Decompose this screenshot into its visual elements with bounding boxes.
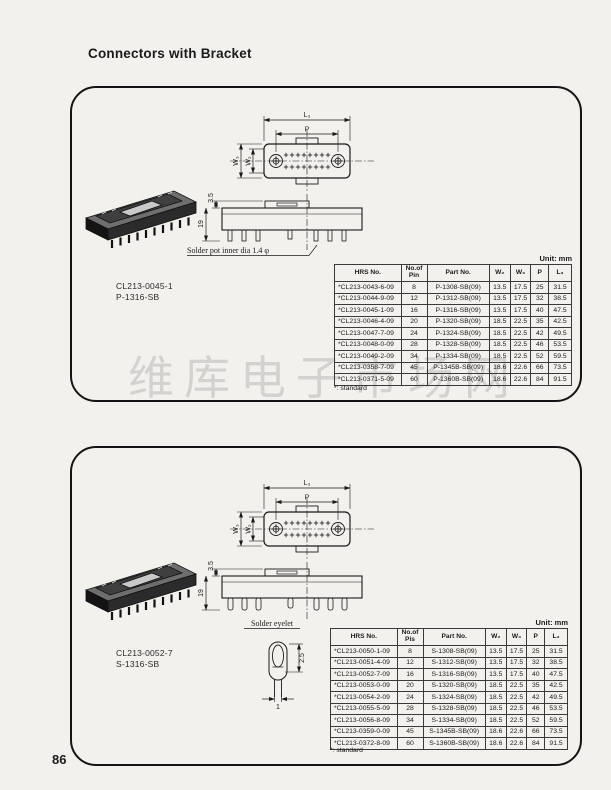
column-header: HRS No.	[335, 265, 402, 282]
table-cell: 18.5	[489, 328, 510, 340]
table-cell: 17.5	[510, 282, 531, 294]
table-cell: 13.5	[485, 669, 506, 681]
table-row: *CL213-0050-1-098S-1308-SB(09)13.517.525…	[331, 646, 568, 658]
table-cell: 42	[531, 328, 549, 340]
table-cell: P-1308-SB(09)	[427, 282, 489, 294]
table-cell: 25	[527, 646, 545, 658]
table-cell: 13.5	[485, 657, 506, 669]
table-cell: 35	[531, 316, 549, 328]
table-cell: 22.5	[506, 692, 527, 704]
table-cell: 22.5	[506, 680, 527, 692]
column-header: W₂	[485, 629, 506, 646]
column-header: W₃	[510, 265, 531, 282]
column-header: W₃	[506, 629, 527, 646]
table-cell: 53.5	[549, 339, 572, 351]
table-cell: 59.5	[549, 351, 572, 363]
table-cell: *CL213-0044-9-09	[335, 293, 402, 305]
table-cell: 53.5	[545, 703, 568, 715]
panel-solder-pot-connector: L₃ P W₃ W₂	[70, 86, 582, 402]
table-cell: 17.5	[506, 669, 527, 681]
table-cell: 32	[527, 657, 545, 669]
model-part-no: S-1316-SB	[116, 659, 173, 670]
table-cell: 40	[531, 305, 549, 317]
table-cell: 20	[397, 680, 423, 692]
table-cell: P-1312-SB(09)	[427, 293, 489, 305]
table-cell: 8	[397, 646, 423, 658]
connector-photo-iso	[86, 563, 196, 620]
table-cell: 42.5	[549, 316, 572, 328]
column-header: Part No.	[423, 629, 485, 646]
dim-label-eyelet-width: 1	[276, 704, 280, 711]
table-row: *CL213-0046-4-0920P-1320-SB(09)18.522.53…	[335, 316, 572, 328]
column-header: No.of Pin	[401, 265, 427, 282]
table-cell: *CL213-0043-6-09	[335, 282, 402, 294]
table-cell: 8	[401, 282, 427, 294]
table-cell: S-1308-SB(09)	[423, 646, 485, 658]
table-row: *CL213-0045-1-0916P-1316-SB(09)13.517.54…	[335, 305, 572, 317]
table-cell: 47.5	[549, 305, 572, 317]
table-cell: P-1316-SB(09)	[427, 305, 489, 317]
table-row: *CL213-0371-5-0960P-1360B-SB(09)18.622.6…	[335, 374, 572, 386]
panel-solder-eyelet-connector: 3.5 19 Solder eyelet 2.5	[70, 446, 582, 766]
table-cell: S-1324-SB(09)	[423, 692, 485, 704]
table-cell: 52	[527, 715, 545, 727]
table-cell: *CL213-0056-8-09	[331, 715, 398, 727]
table-row: *CL213-0052-7-0916S-1316-SB(09)13.517.54…	[331, 669, 568, 681]
table-cell: S-1328-SB(09)	[423, 703, 485, 715]
table-cell: 22.5	[510, 339, 531, 351]
table-cell: 45	[397, 726, 423, 738]
table-cell: P-1360B-SB(09)	[427, 374, 489, 386]
table-cell: 66	[527, 726, 545, 738]
dim-label-19: 19	[198, 220, 205, 228]
table-cell: 49.5	[549, 328, 572, 340]
table-cell: 42.5	[545, 680, 568, 692]
table-row: *CL213-0054-2-0924S-1324-SB(09)18.522.54…	[331, 692, 568, 704]
page-number: 86	[52, 752, 66, 767]
table-cell: 16	[401, 305, 427, 317]
table-cell: 22.6	[506, 738, 527, 750]
table-row: *CL213-0358-7-0945P-1345B-SB(09)18.622.6…	[335, 362, 572, 374]
table-cell: P-1320-SB(09)	[427, 316, 489, 328]
table-cell: 17.5	[510, 305, 531, 317]
table-row: *CL213-0359-0-0945S-1345B-SB(09)18.622.6…	[331, 726, 568, 738]
table-cell: 34	[401, 351, 427, 363]
model-part-no: P-1316-SB	[116, 292, 173, 303]
standard-footnote: *: standard	[330, 747, 363, 754]
dim-label-3-5: 3.5	[208, 193, 215, 203]
column-header: Part No.	[427, 265, 489, 282]
table-cell: *CL213-0050-1-09	[331, 646, 398, 658]
table-cell: 32	[531, 293, 549, 305]
connector-photo-iso	[86, 191, 196, 248]
table-cell: 28	[397, 703, 423, 715]
unit-label: Unit: mm	[330, 618, 568, 627]
solder-eyelet-callout: Solder eyelet	[251, 619, 294, 628]
table-cell: 25	[531, 282, 549, 294]
table-cell: 66	[531, 362, 549, 374]
table-cell: 22.6	[510, 362, 531, 374]
table-cell: 12	[397, 657, 423, 669]
table-row: *CL213-0047-7-0924P-1324-SB(09)18.522.54…	[335, 328, 572, 340]
table-cell: *CL213-0048-0-09	[335, 339, 402, 351]
table-cell: S-1316-SB(09)	[423, 669, 485, 681]
table-cell: 13.5	[489, 293, 510, 305]
table-row: *CL213-0044-9-0912P-1312-SB(09)13.517.53…	[335, 293, 572, 305]
table-cell: 38.5	[549, 293, 572, 305]
table-cell: *CL213-0053-0-09	[331, 680, 398, 692]
table-header-row: HRS No.No.of PisPart No.W₂W₃PL₃	[331, 629, 568, 646]
column-header: No.of Pis	[397, 629, 423, 646]
table-cell: 17.5	[506, 646, 527, 658]
table-cell: S-1360B-SB(09)	[423, 738, 485, 750]
column-header: W₂	[489, 265, 510, 282]
model-label: CL213-0052-7 S-1316-SB	[116, 648, 173, 670]
table-cell: 28	[401, 339, 427, 351]
table-cell: 47.5	[545, 669, 568, 681]
table-cell: 18.5	[489, 339, 510, 351]
table-cell: *CL213-0046-4-09	[335, 316, 402, 328]
table-cell: 46	[531, 339, 549, 351]
table-cell: 84	[531, 374, 549, 386]
table-row: *CL213-0048-0-0928P-1328-SB(09)18.522.54…	[335, 339, 572, 351]
table-cell: 18.5	[489, 351, 510, 363]
table-cell: S-1334-SB(09)	[423, 715, 485, 727]
table-cell: 22.5	[506, 715, 527, 727]
table-cell: *CL213-0358-7-09	[335, 362, 402, 374]
table-cell: *CL213-0052-7-09	[331, 669, 398, 681]
spec-table-s-series: HRS No.No.of PisPart No.W₂W₃PL₃*CL213-00…	[330, 628, 568, 750]
connector-face-view	[230, 112, 374, 192]
dim-label-eyelet-height: 2.5	[299, 653, 306, 663]
table-cell: 52	[531, 351, 549, 363]
table-cell: 38.5	[545, 657, 568, 669]
column-header: P	[531, 265, 549, 282]
table-cell: 22.5	[506, 703, 527, 715]
eyelet-detail-drawing: 2.5 1	[262, 642, 306, 711]
table-cell: 42	[527, 692, 545, 704]
table-cell: 18.6	[485, 738, 506, 750]
table-cell: 31.5	[545, 646, 568, 658]
table-cell: P-1328-SB(09)	[427, 339, 489, 351]
column-header: L₃	[549, 265, 572, 282]
table-cell: *CL213-0055-5-09	[331, 703, 398, 715]
table-row: *CL213-0372-8-0960S-1360B-SB(09)18.622.6…	[331, 738, 568, 750]
table-cell: S-1312-SB(09)	[423, 657, 485, 669]
table-cell: 59.5	[545, 715, 568, 727]
model-hrs-no: CL213-0045-1	[116, 281, 173, 292]
table-cell: S-1320-SB(09)	[423, 680, 485, 692]
table-cell: 40	[527, 669, 545, 681]
table-cell: 60	[401, 374, 427, 386]
table-cell: *CL213-0054-2-09	[331, 692, 398, 704]
table-cell: 18.5	[489, 316, 510, 328]
table-cell: 22.5	[510, 351, 531, 363]
table-cell: 45	[401, 362, 427, 374]
table-cell: P-1334-SB(09)	[427, 351, 489, 363]
catalog-page: Connectors with Bracket 维库电子市场网	[0, 0, 611, 790]
table-row: *CL213-0053-0-0920S-1320-SB(09)18.522.53…	[331, 680, 568, 692]
column-header: P	[527, 629, 545, 646]
table-cell: 18.5	[485, 680, 506, 692]
table-cell: P-1324-SB(09)	[427, 328, 489, 340]
table-cell: 13.5	[485, 646, 506, 658]
table-cell: 24	[397, 692, 423, 704]
table-cell: 60	[397, 738, 423, 750]
page-title: Connectors with Bracket	[88, 46, 252, 61]
table-cell: 18.5	[485, 715, 506, 727]
model-label: CL213-0045-1 P-1316-SB	[116, 281, 173, 303]
table-cell: 24	[401, 328, 427, 340]
table-cell: 22.5	[510, 328, 531, 340]
table-cell: 18.6	[485, 726, 506, 738]
table-cell: S-1345B-SB(09)	[423, 726, 485, 738]
table-cell: 73.5	[545, 726, 568, 738]
table-header-row: HRS No.No.of PinPart No.W₂W₃PL₃	[335, 265, 572, 282]
table-row: *CL213-0056-8-0934S-1334-SB(09)18.522.55…	[331, 715, 568, 727]
table-cell: 35	[527, 680, 545, 692]
table-cell: 49.5	[545, 692, 568, 704]
unit-label: Unit: mm	[334, 254, 572, 263]
table-cell: *CL213-0049-2-09	[335, 351, 402, 363]
table-cell: 46	[527, 703, 545, 715]
table-cell: *CL213-0359-0-09	[331, 726, 398, 738]
table-row: *CL213-0055-5-0928S-1328-SB(09)18.522.54…	[331, 703, 568, 715]
table-cell: 20	[401, 316, 427, 328]
table-cell: 18.6	[489, 362, 510, 374]
table-cell: 18.5	[485, 692, 506, 704]
table-cell: 22.6	[506, 726, 527, 738]
dim-label-19: 19	[198, 589, 205, 597]
table-cell: 73.5	[549, 362, 572, 374]
table-cell: 13.5	[489, 282, 510, 294]
table-cell: P-1345B-SB(09)	[427, 362, 489, 374]
table-row: *CL213-0043-6-098P-1308-SB(09)13.517.525…	[335, 282, 572, 294]
table-cell: *CL213-0045-1-09	[335, 305, 402, 317]
model-hrs-no: CL213-0052-7	[116, 648, 173, 659]
table-cell: *CL213-0371-5-09	[335, 374, 402, 386]
column-header: L₃	[545, 629, 568, 646]
table-cell: 31.5	[549, 282, 572, 294]
table-cell: 18.6	[489, 374, 510, 386]
table-cell: 18.5	[485, 703, 506, 715]
table-cell: 34	[397, 715, 423, 727]
table-cell: 91.5	[545, 738, 568, 750]
connector-side-view: 3.5 19 Solder pot inner dia 1.4 φ	[187, 193, 362, 255]
standard-footnote: *: standard	[334, 385, 367, 392]
table-cell: *CL213-0051-4-09	[331, 657, 398, 669]
spec-table-p-series: HRS No.No.of PinPart No.W₂W₃PL₃*CL213-00…	[334, 264, 572, 386]
solder-pot-callout: Solder pot inner dia 1.4 φ	[187, 246, 269, 255]
table-cell: 12	[401, 293, 427, 305]
table-cell: *CL213-0047-7-09	[335, 328, 402, 340]
table-cell: 17.5	[506, 657, 527, 669]
table-cell: 16	[397, 669, 423, 681]
table-row: *CL213-0049-2-0934P-1334-SB(09)18.522.55…	[335, 351, 572, 363]
table-cell: 22.6	[510, 374, 531, 386]
table-cell: 91.5	[549, 374, 572, 386]
table-cell: 17.5	[510, 293, 531, 305]
dim-label-3-5: 3.5	[208, 561, 215, 571]
column-header: HRS No.	[331, 629, 398, 646]
connector-face-view	[230, 480, 374, 560]
table-row: *CL213-0051-4-0912S-1312-SB(09)13.517.53…	[331, 657, 568, 669]
table-cell: 84	[527, 738, 545, 750]
table-cell: 22.5	[510, 316, 531, 328]
table-cell: 13.5	[489, 305, 510, 317]
